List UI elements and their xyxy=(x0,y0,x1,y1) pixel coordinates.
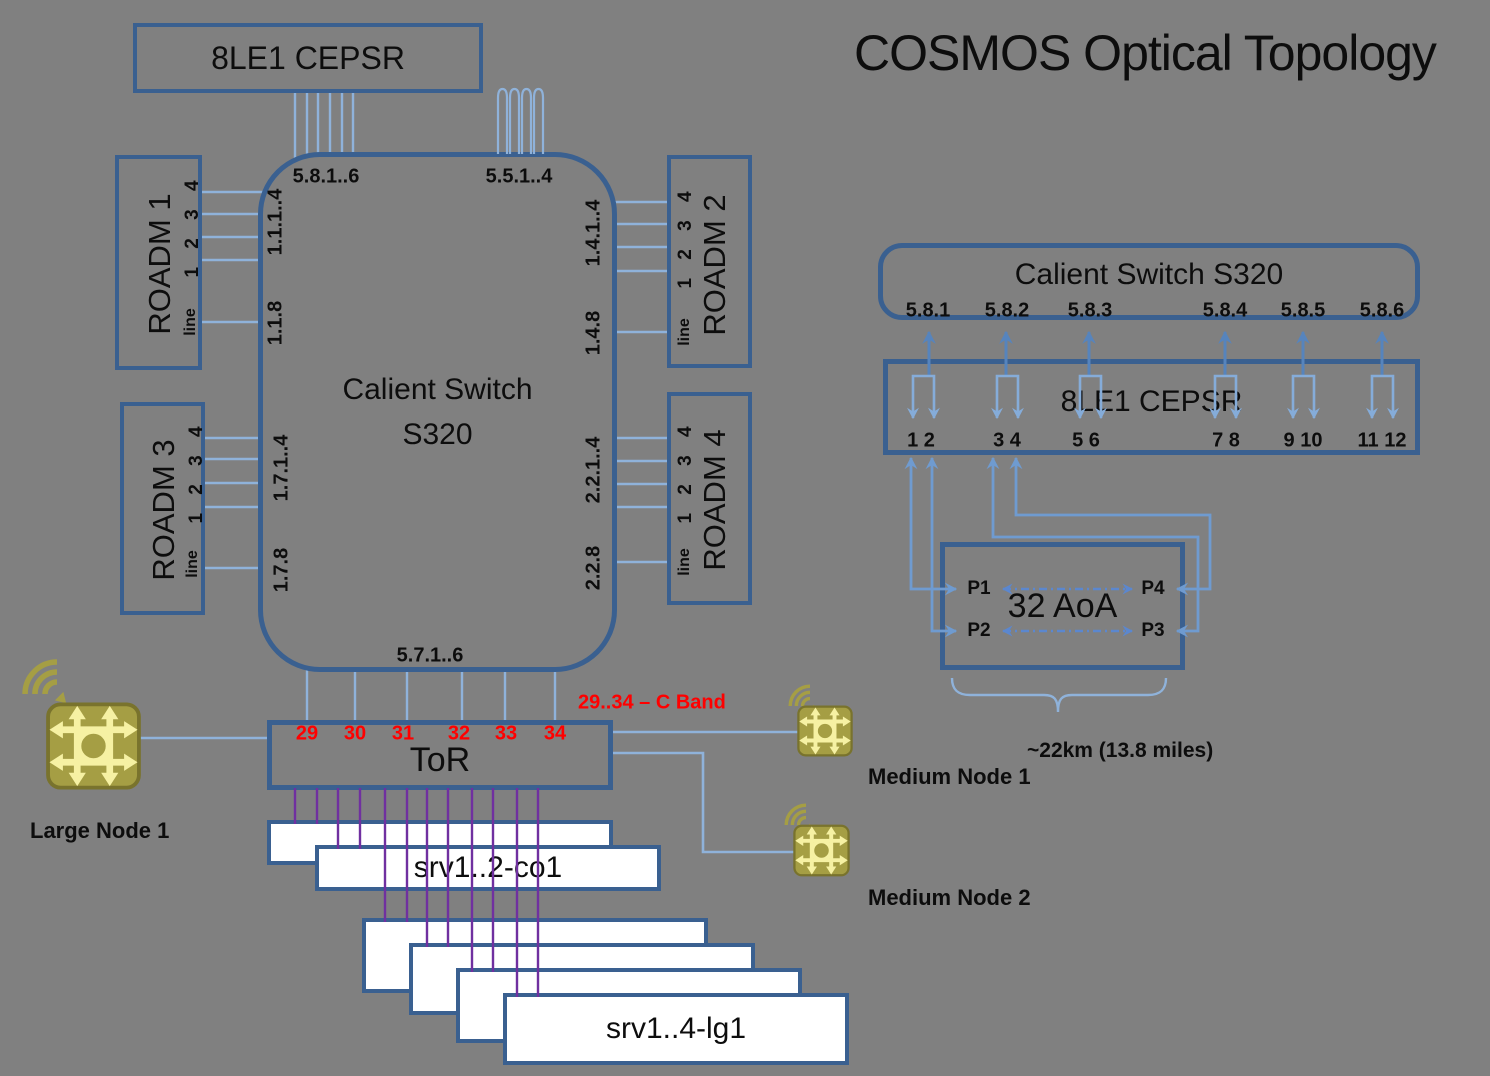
port-label-roadm3-line: 1.7.8 xyxy=(271,548,294,592)
cepsr-ports-5-6: 5 6 xyxy=(1072,430,1100,453)
tor-to-server-links xyxy=(295,788,538,997)
calient-port-581: 5.8.1 xyxy=(906,300,950,323)
arrow-links-layer xyxy=(0,0,1490,1076)
port-pair-staples xyxy=(913,376,1393,418)
calient-port-585: 5.8.5 xyxy=(1281,300,1325,323)
tor-port-31: 31 xyxy=(392,723,414,746)
calient-port-584: 5.8.4 xyxy=(1203,300,1247,323)
aoa-port-p3: P3 xyxy=(1141,620,1164,642)
port-label-roadm4-data: 2.2.1..4 xyxy=(583,437,606,504)
aoa-port-p4: P4 xyxy=(1141,578,1164,600)
tor-port-30: 30 xyxy=(344,723,366,746)
medium-node1-label: Medium Node 1 xyxy=(868,764,1031,790)
router-icon xyxy=(794,826,848,876)
medium-node2-icon xyxy=(764,797,856,883)
medium-node1-icon xyxy=(768,678,860,764)
tor-port-34: 34 xyxy=(544,723,566,746)
cepsr-to-aoa-links xyxy=(911,458,1210,631)
aoa-port-p2: P2 xyxy=(967,620,990,642)
port-label-roadm2-data: 1.4.1..4 xyxy=(583,200,606,267)
distance-label: ~22km (13.8 miles) xyxy=(1027,739,1213,763)
port-label-5514: 5.5.1..4 xyxy=(486,166,553,189)
cepsr-ports-3-4: 3 4 xyxy=(993,430,1021,453)
router-icon xyxy=(48,704,139,787)
calient-port-583: 5.8.3 xyxy=(1068,300,1112,323)
port-label-5716: 5.7.1..6 xyxy=(397,645,464,668)
cband-note: 29..34 – C Band xyxy=(578,692,726,715)
medium-node2-label: Medium Node 2 xyxy=(868,885,1031,911)
large-node-icon xyxy=(10,652,150,797)
cepsr-ports-9-10: 9 10 xyxy=(1284,430,1323,453)
tor-port-32: 32 xyxy=(448,723,470,746)
loopback-hairpins xyxy=(498,89,543,154)
large-node-label: Large Node 1 xyxy=(30,818,169,844)
port-label-roadm2-line: 1.4.8 xyxy=(583,311,606,355)
page-title: COSMOS Optical Topology xyxy=(825,24,1465,82)
port-label-5816: 5.8.1..6 xyxy=(293,166,360,189)
aoa-internal-arrows xyxy=(1003,589,1132,631)
router-icon xyxy=(798,707,851,756)
tor-port-29: 29 xyxy=(296,723,318,746)
port-label-roadm4-line: 2.2.8 xyxy=(583,546,606,590)
cepsr-ports-11-12: 11 12 xyxy=(1358,430,1407,453)
diagram-canvas: 8LE1 CEPSR Calient Switch S320 ROADM 1 1… xyxy=(0,0,1490,1076)
port-label-roadm1-data: 1.1.1..4 xyxy=(265,189,288,256)
calient-port-582: 5.8.2 xyxy=(985,300,1029,323)
port-label-roadm3-data: 1.7.1..4 xyxy=(271,435,294,502)
tor-port-33: 33 xyxy=(495,723,517,746)
cepsr-ports-1-2: 1 2 xyxy=(907,430,935,453)
distance-brace xyxy=(952,678,1166,712)
cepsr-ports-7-8: 7 8 xyxy=(1212,430,1240,453)
cepsr-to-calient-arrows xyxy=(929,332,1382,376)
calient-port-586: 5.8.6 xyxy=(1360,300,1404,323)
port-label-roadm1-line: 1.1.8 xyxy=(265,301,288,345)
aoa-port-p1: P1 xyxy=(967,578,990,600)
